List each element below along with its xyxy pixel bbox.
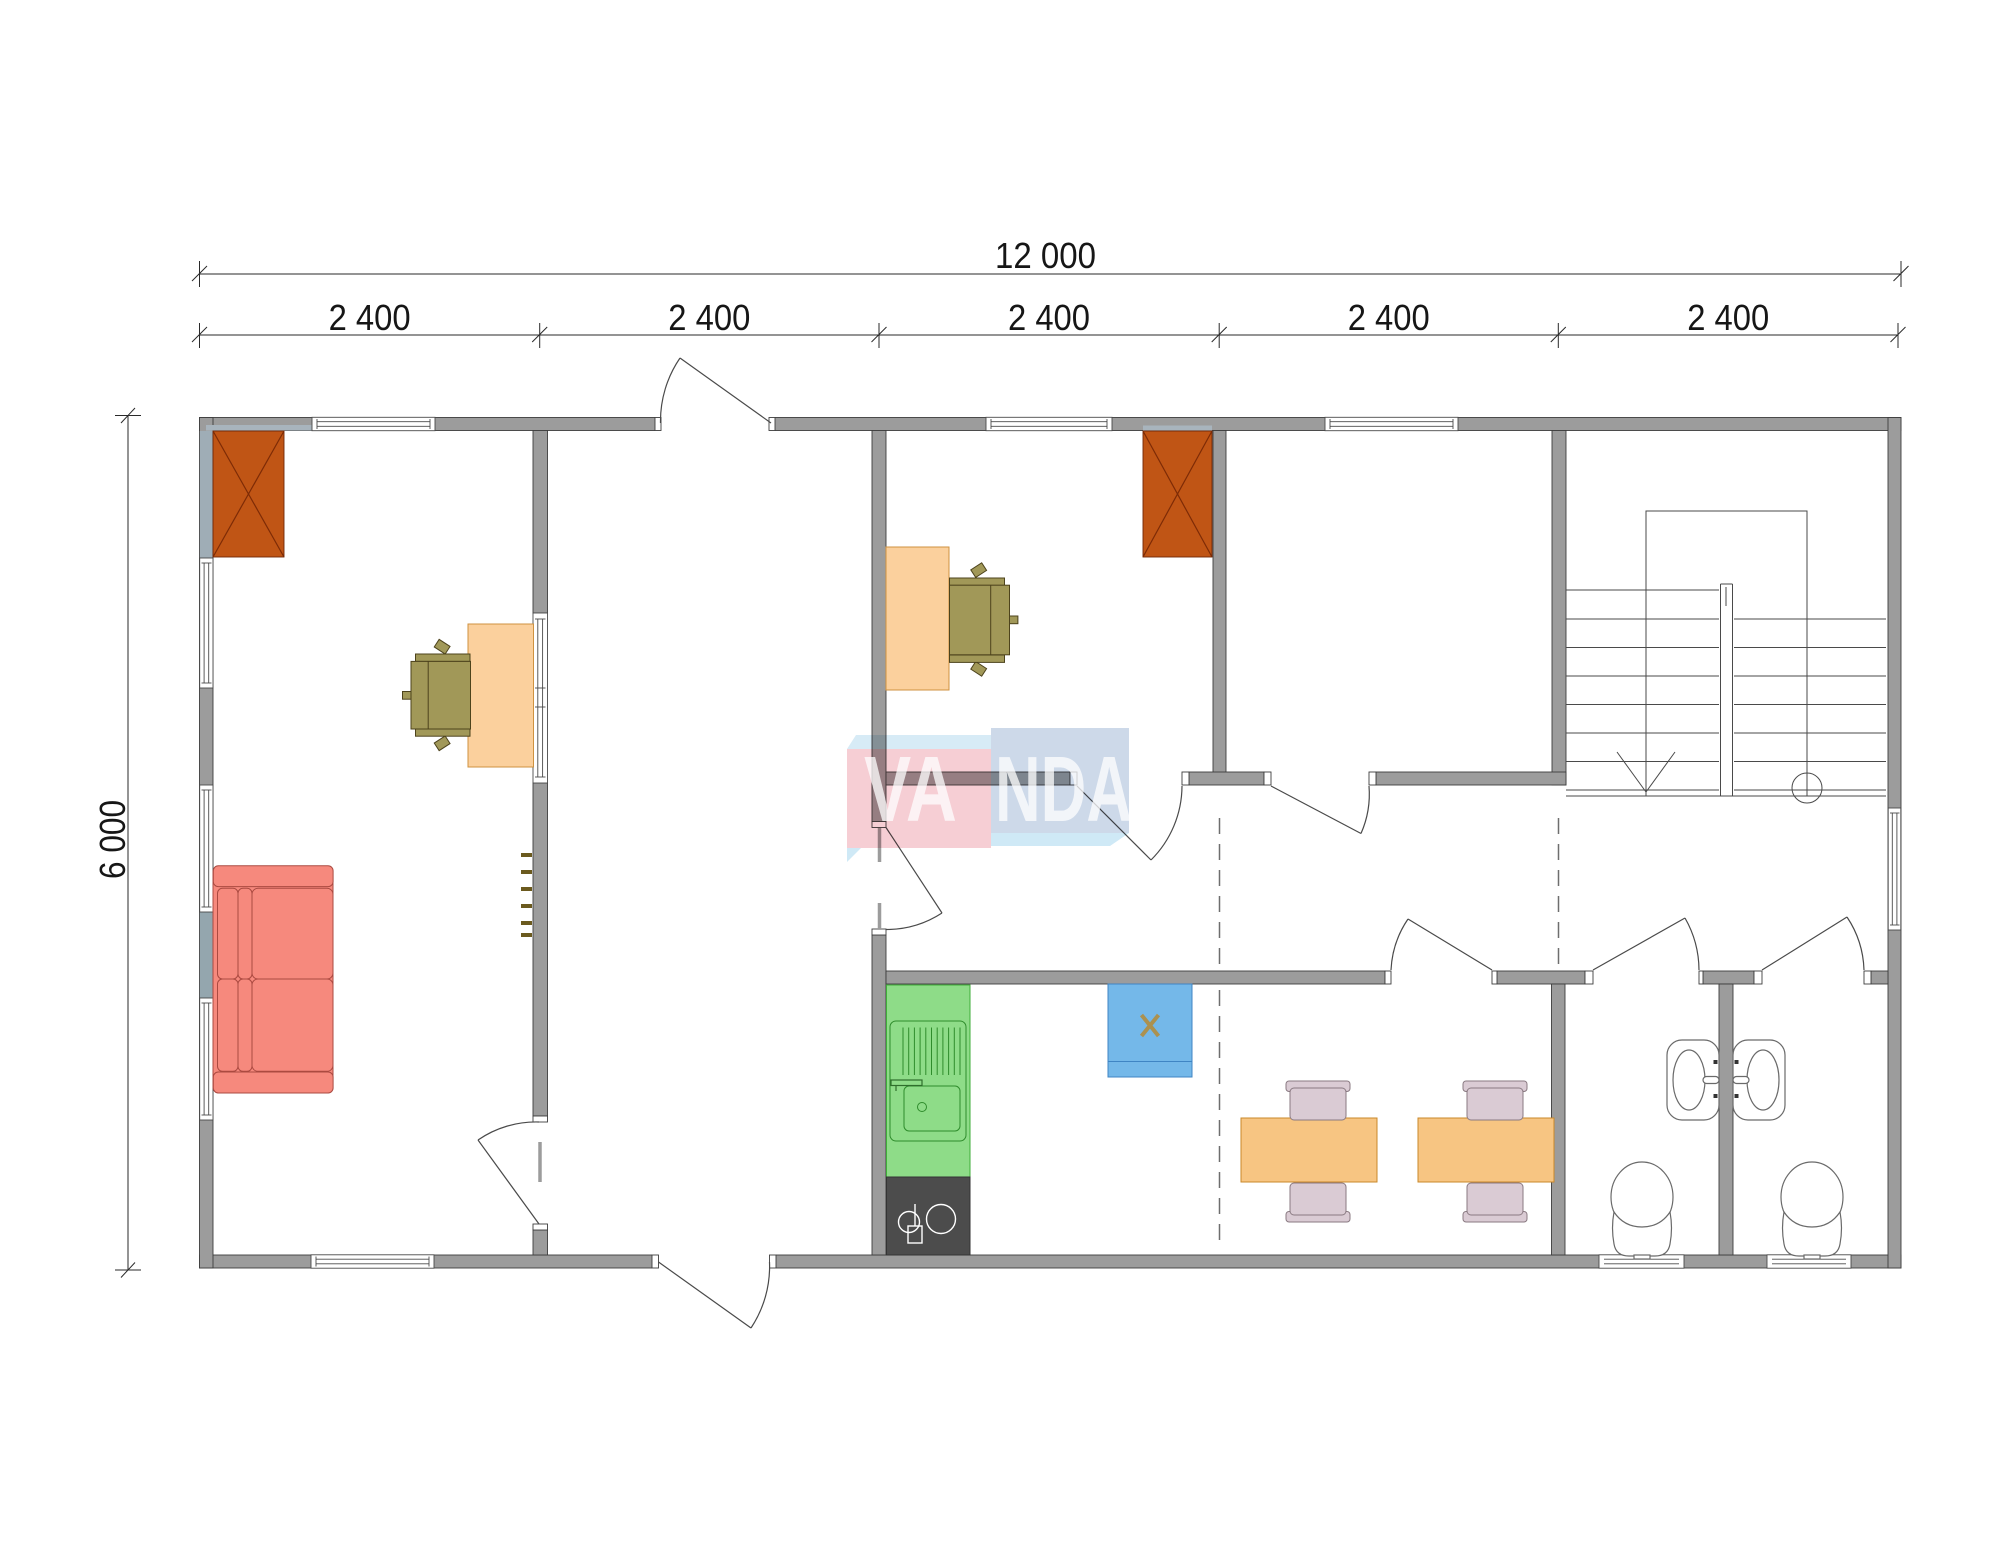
svg-text:NDA: NDA bbox=[995, 737, 1132, 841]
svg-text:2 400: 2 400 bbox=[668, 297, 750, 338]
svg-text:2 400: 2 400 bbox=[1008, 297, 1090, 338]
svg-text:2 400: 2 400 bbox=[1687, 297, 1769, 338]
svg-text:VA: VA bbox=[864, 737, 957, 841]
svg-text:2 400: 2 400 bbox=[1348, 297, 1430, 338]
svg-text:12 000: 12 000 bbox=[995, 235, 1096, 276]
svg-text:6 000: 6 000 bbox=[92, 800, 133, 879]
svg-text:2 400: 2 400 bbox=[329, 297, 411, 338]
